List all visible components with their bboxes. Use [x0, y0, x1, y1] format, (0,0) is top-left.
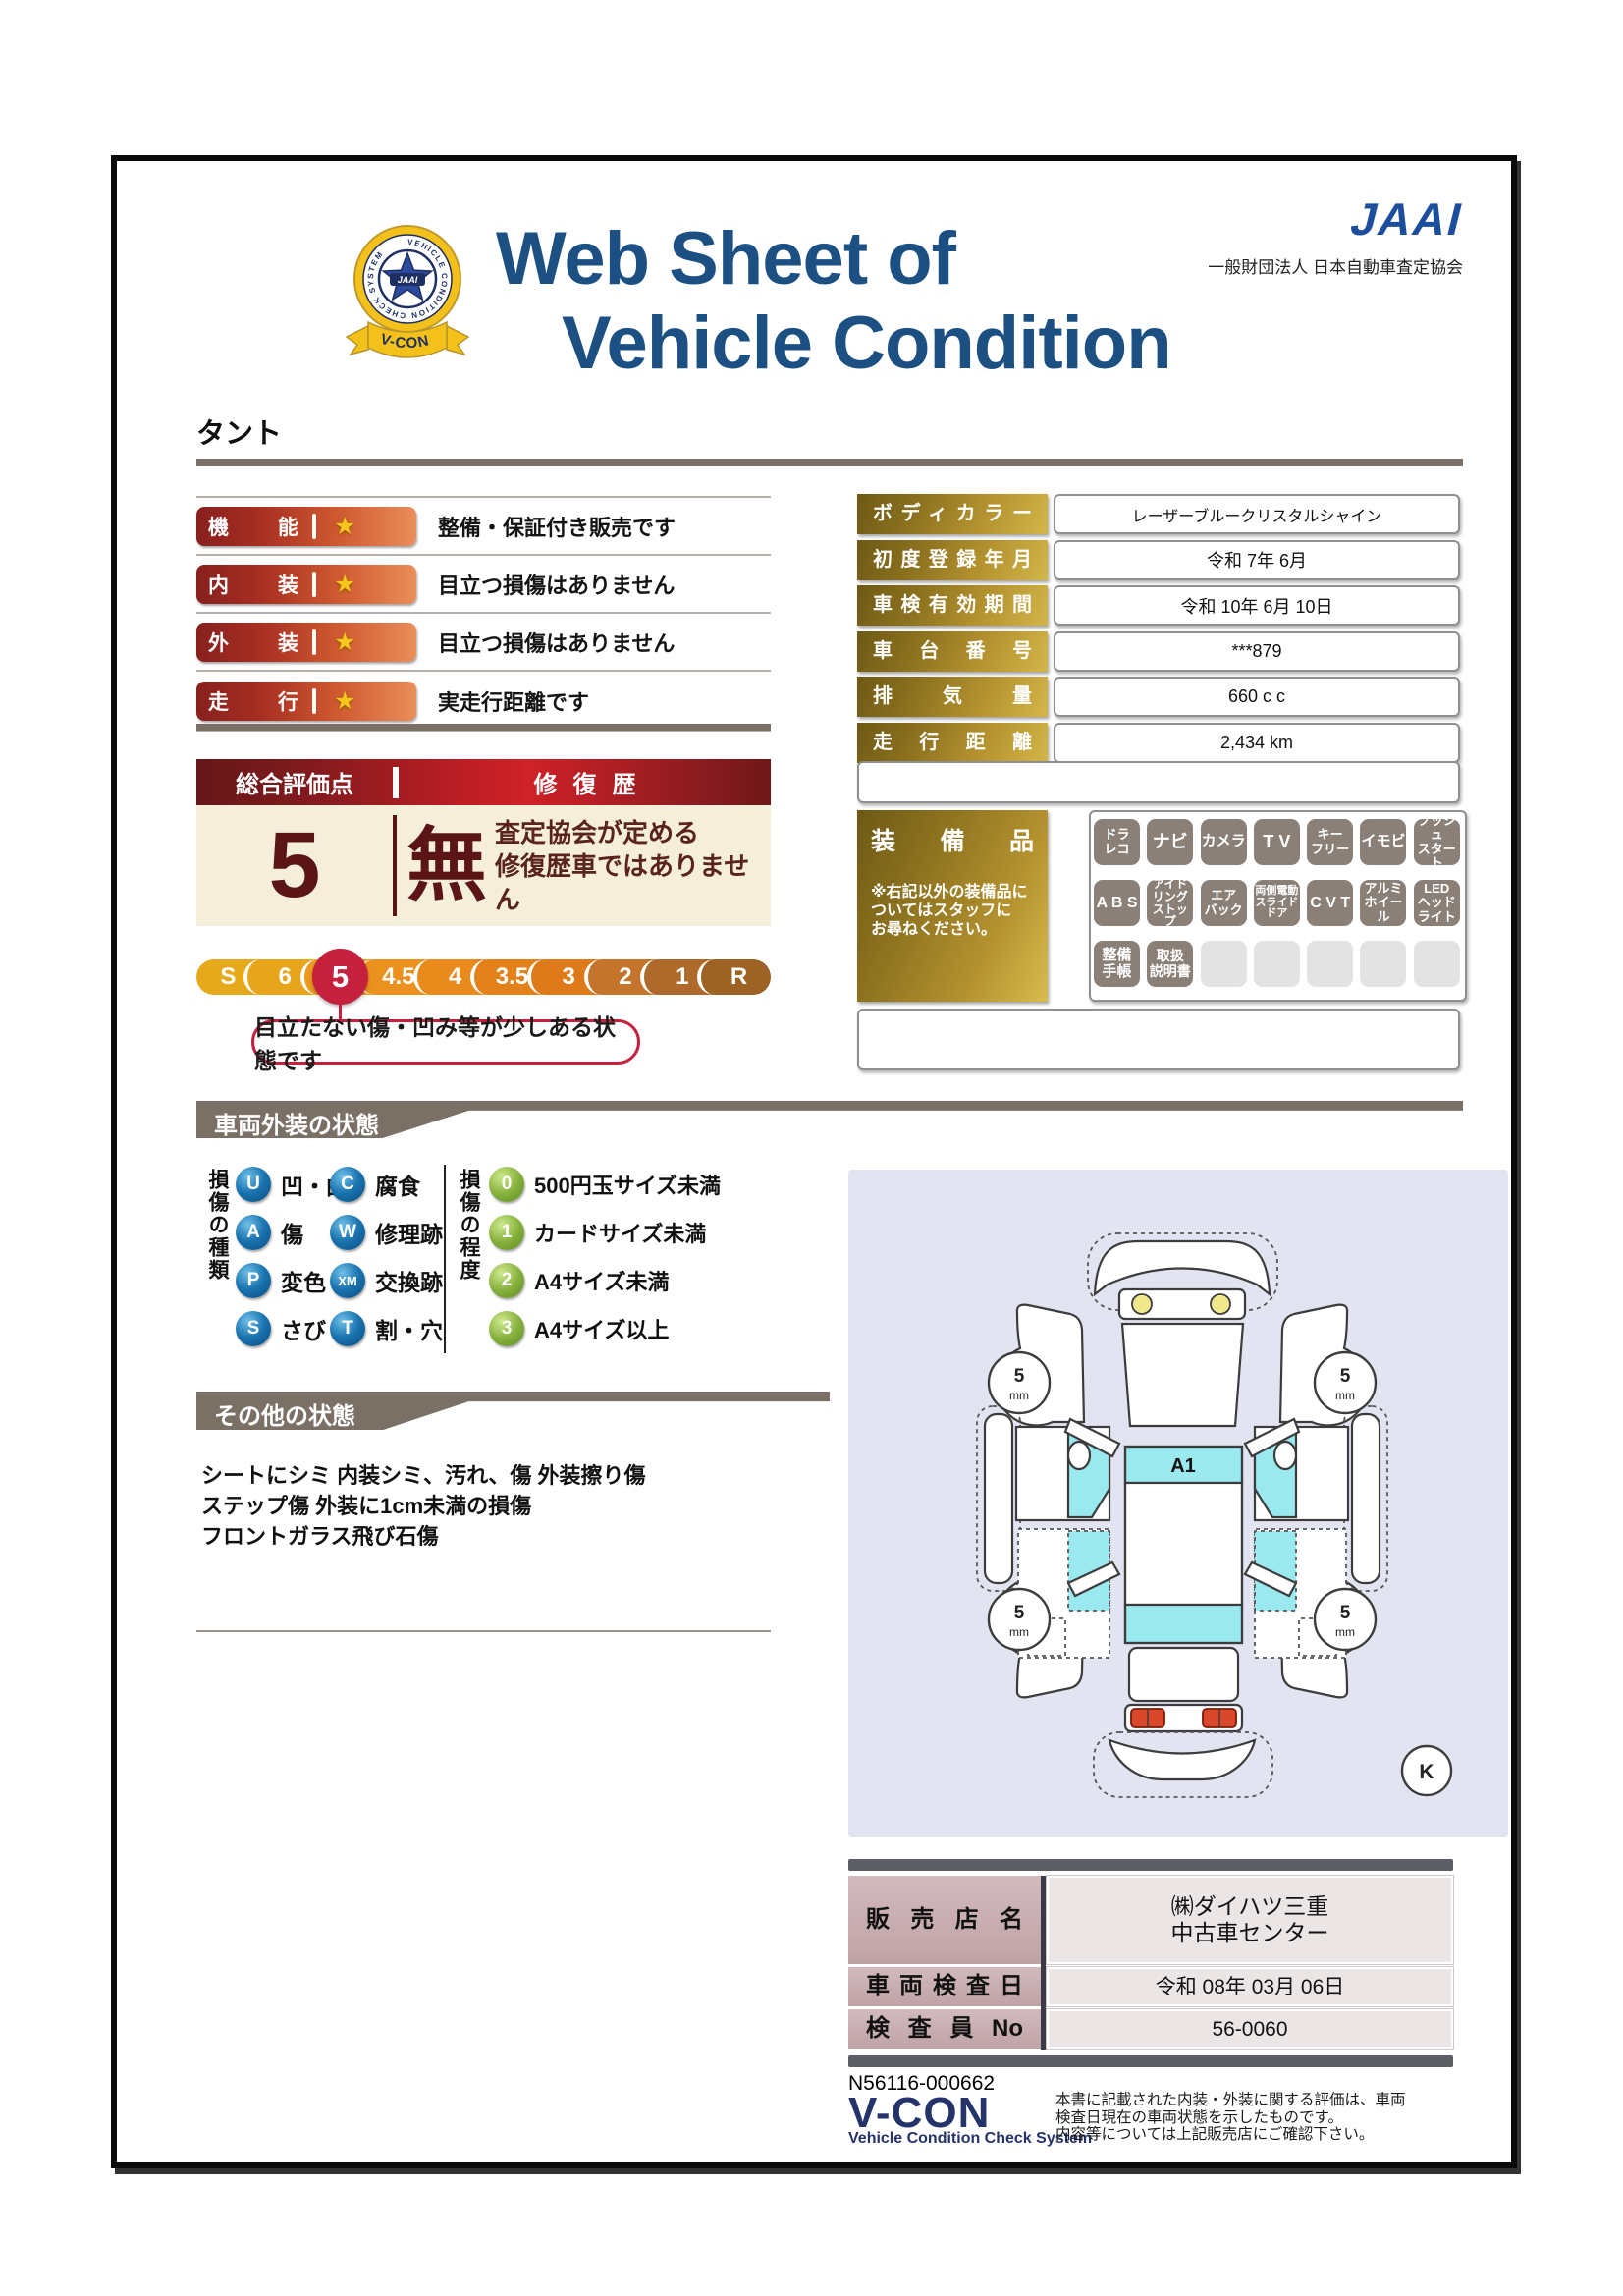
empty-note-box	[857, 1009, 1460, 1070]
sheet-title-line2: Vehicle Condition	[562, 306, 1171, 381]
grade-r: R	[697, 959, 771, 995]
equip-badge-empty	[1201, 941, 1247, 987]
legend-degree-0: 0 500円玉サイズ未満	[489, 1167, 721, 1202]
legend-type-w: W 修理跡	[330, 1215, 443, 1250]
svg-text:mm: mm	[1335, 1625, 1355, 1639]
repair-history-title: 修復歴	[399, 765, 771, 799]
dealer-table-divider	[1041, 1876, 1046, 2050]
jaai-logo: JAAI	[1212, 196, 1468, 242]
equip-badge-dashcam: ドラ レコ	[1094, 819, 1140, 865]
evaluation-header: 総合評価点 修復歴	[196, 759, 771, 805]
empty-note-box	[857, 761, 1460, 803]
thin-divider	[196, 1630, 771, 1632]
rating-pill: 走行 ★	[196, 682, 416, 721]
rating-description: 整備・保証付き販売です	[438, 511, 676, 542]
rating-description: 実走行距離です	[438, 685, 589, 717]
svg-text:mm: mm	[1009, 1625, 1029, 1639]
equip-badge-power-slide-door: 両側電動 スライド ドア	[1254, 880, 1300, 926]
legend-degree-3: 3 A4サイズ以上	[489, 1311, 669, 1346]
svg-text:K: K	[1419, 1761, 1434, 1783]
rating-list: 機能 ★ 整備・保証付き販売です 内装 ★ 目立つ損傷はありません 外装 ★ 目…	[196, 496, 771, 732]
svg-text:5: 5	[1014, 1366, 1025, 1387]
grade-scale: S 6 4.5 4 3.5 3 2 1 R	[196, 959, 771, 995]
svg-text:JAAI: JAAI	[398, 275, 418, 285]
detail-row-first-registration: 初度登録年月 令和 7年 6月	[857, 540, 1460, 580]
rating-pill: 機能 ★	[196, 507, 416, 546]
star-icon: ★	[334, 628, 355, 657]
damage-degree-title: 損傷の程度	[454, 1169, 483, 1365]
equip-badge-empty	[1254, 941, 1300, 987]
repair-note-2: 修復歴車ではありません	[495, 849, 771, 916]
svg-text:mm: mm	[1335, 1389, 1355, 1402]
equip-badge-keyfree: キー フリー	[1307, 819, 1353, 865]
evaluation-body: 5 無 査定協会が定める 修復歴車ではありません	[196, 805, 771, 926]
detail-row-inspection-valid: 車検有効期間 令和 10年 6月 10日	[857, 585, 1460, 626]
star-icon: ★	[334, 512, 355, 541]
damage-type-title: 損傷の種類	[202, 1169, 232, 1365]
star-icon: ★	[334, 686, 355, 716]
equip-badge-airbag: エア バック	[1201, 880, 1247, 926]
equip-badge-tv: T V	[1254, 819, 1300, 865]
dealer-table-top-bar	[848, 1859, 1453, 1871]
detail-row-mileage: 走行距離 2,434 km	[857, 723, 1460, 763]
equipment-title: 装備品	[871, 822, 1034, 857]
equip-badge-alloy-wheel: アルミ ホイール	[1360, 880, 1406, 926]
active-grade-marker: 5	[312, 949, 368, 1005]
equip-badge-pushstart: プッシュ スタート	[1414, 819, 1460, 865]
star-icon: ★	[334, 570, 355, 599]
rating-row-exterior: 外装 ★ 目立つ損傷はありません	[196, 612, 771, 670]
equip-badge-cvt: C V T	[1307, 880, 1353, 926]
equip-badge-empty	[1307, 941, 1353, 987]
detail-row-displacement: 排気量 660 c c	[857, 677, 1460, 717]
sheet-title-line1: Web Sheet of	[496, 222, 955, 297]
dealer-table-bottom-bar	[848, 2055, 1453, 2067]
divider-bar	[196, 459, 1463, 466]
legend-type-t: T 割・穴	[330, 1311, 443, 1346]
rating-row-mileage: 走行 ★ 実走行距離です	[196, 670, 771, 732]
rating-pill: 内装 ★	[196, 565, 416, 604]
zone-label: A1	[1170, 1455, 1196, 1477]
grade-pointer	[339, 1004, 342, 1020]
rating-description: 目立つ損傷はありません	[438, 569, 675, 600]
svg-text:5: 5	[1340, 1366, 1351, 1387]
equip-badge-navi: ナビ	[1147, 819, 1193, 865]
rating-description: 目立つ損傷はありません	[438, 627, 675, 658]
rating-row-function: 機能 ★ 整備・保証付き販売です	[196, 496, 771, 554]
other-condition-notes: シートにシミ 内装シミ、汚れ、傷 外装擦り傷 ステップ傷 外装に1cm未満の損傷…	[201, 1460, 645, 1552]
legend-type-xm: XM 交換跡	[330, 1263, 443, 1298]
dealer-row-inspection-date: 車両検査日 令和 08年 03月 06日	[848, 1967, 1453, 2006]
legend-type-a: A 傷	[236, 1215, 303, 1250]
divider-bar	[196, 724, 771, 731]
equip-badge-service-book: 整備 手帳	[1094, 941, 1140, 987]
equipment-note: ※右記以外の装備品に ついてはスタッフに お尋ねください。	[871, 883, 1034, 939]
equip-badge-idling-stop: アイド リング ストップ	[1147, 880, 1193, 926]
detail-row-body-color: ボディカラー レーザーブルークリスタルシャイン	[857, 494, 1460, 534]
svg-text:5: 5	[1014, 1603, 1025, 1623]
disclaimer-text: 本書に記載された内装・外装に関する評価は、車両 検査日現在の車両状態を示したもの…	[1055, 2092, 1478, 2144]
equip-badge-manual: 取扱 説明書	[1147, 941, 1193, 987]
grade-callout: 目立たない傷・凹み等が少しある状態です	[251, 1019, 640, 1065]
vehicle-details-table: ボディカラー レーザーブルークリスタルシャイン 初度登録年月 令和 7年 6月 …	[857, 494, 1460, 768]
vcon-logo: V-CON	[848, 2092, 990, 2135]
score-title: 総合評価点	[196, 765, 393, 799]
detail-row-chassis-no: 車台番号 ***879	[857, 631, 1460, 672]
svg-text:5: 5	[1340, 1603, 1351, 1623]
vehicle-name: タント	[196, 410, 282, 452]
equip-badge-empty	[1414, 941, 1460, 987]
equipment-grid: ドラ レコ ナビ カメラ T V キー フリー イモビ プッシュ スタート A …	[1094, 819, 1460, 987]
rating-pill: 外装 ★	[196, 623, 416, 662]
vehicle-condition-sheet: VEHICLE CONDITION CHECK SYSTEM JAAI V-CO…	[0, 0, 1623, 2296]
car-damage-diagram: A1 5 mm 5 mm 5 mm 5 mm K	[848, 1170, 1508, 1837]
dealer-row-inspector-no: 検査員No 56-0060	[848, 2009, 1453, 2049]
equip-badge-led-headlight: LED ヘッド ライト	[1414, 880, 1460, 926]
repair-note-1: 査定協会が定める	[495, 816, 771, 849]
repair-history-value: 無	[406, 826, 487, 906]
svg-text:mm: mm	[1009, 1389, 1029, 1402]
equip-badge-camera: カメラ	[1201, 819, 1247, 865]
legend-type-s: S さび	[236, 1311, 326, 1346]
vcon-badge-icon: VEHICLE CONDITION CHECK SYSTEM JAAI V-CO…	[339, 218, 476, 375]
equip-badge-abs: A B S	[1094, 880, 1140, 926]
equipment-label-block: 装備品 ※右記以外の装備品に ついてはスタッフに お尋ねください。	[857, 810, 1048, 1002]
equip-badge-immobilizer: イモビ	[1360, 819, 1406, 865]
dealer-row-shop: 販売店名 ㈱ダイハツ三重 中古車センター	[848, 1876, 1453, 1964]
legend-divider	[444, 1165, 446, 1353]
legend-degree-2: 2 A4サイズ未満	[489, 1263, 669, 1298]
legend-type-p: P 変色	[236, 1263, 326, 1298]
dealer-table: 販売店名 ㈱ダイハツ三重 中古車センター 車両検査日 令和 08年 03月 06…	[848, 1876, 1453, 2049]
legend-degree-1: 1 カードサイズ未満	[489, 1215, 706, 1250]
equip-badge-empty	[1360, 941, 1406, 987]
overall-score: 5	[196, 805, 393, 926]
jaai-organization: 一般財団法人 日本自動車査定協会	[1168, 253, 1463, 278]
legend-type-c: C 腐食	[330, 1167, 420, 1202]
rating-row-interior: 内装 ★ 目立つ損傷はありません	[196, 554, 771, 612]
